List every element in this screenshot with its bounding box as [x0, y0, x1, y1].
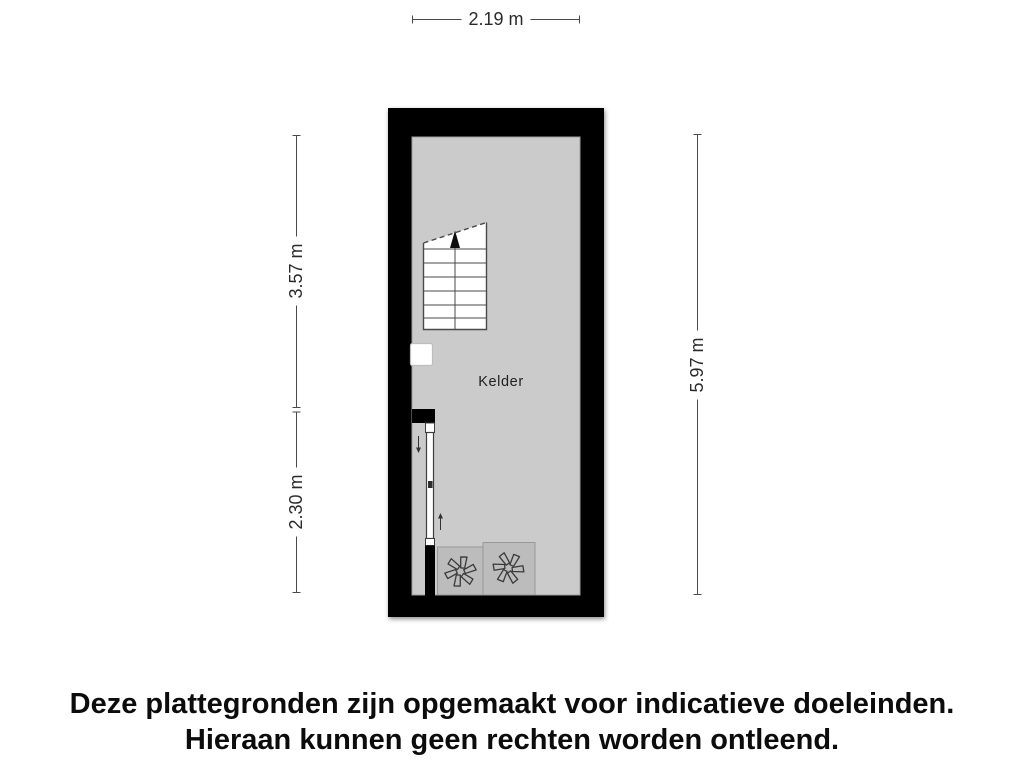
disclaimer: Deze plattegronden zijn opgemaakt voor i… — [0, 686, 1024, 758]
disclaimer-line-2: Hieraan kunnen geen rechten worden ontle… — [0, 722, 1024, 758]
dimension-label-left-upper: 3.57 m — [285, 236, 307, 305]
wall-stub-upper — [412, 409, 435, 423]
room-label: Kelder — [478, 374, 524, 390]
ladder-bottom-cap — [426, 539, 435, 546]
floorplan-page: 2.19 m 3.57 m 2.30 m 5.97 m Kelder Deze … — [0, 0, 1024, 768]
dimension-label-left-lower: 2.30 m — [285, 467, 307, 536]
ladder-rung — [428, 481, 433, 488]
appliance-left — [438, 547, 484, 595]
disclaimer-line-1: Deze plattegronden zijn opgemaakt voor i… — [0, 686, 1024, 722]
dimension-label-top: 2.19 m — [461, 8, 530, 30]
ladder-top-cap — [426, 423, 435, 433]
dimension-label-right: 5.97 m — [686, 330, 708, 399]
appliance-right — [483, 543, 535, 596]
wall-niche — [411, 344, 433, 366]
appliances — [438, 543, 536, 596]
wall-stub-lower — [425, 546, 435, 596]
cellar-floor — [412, 137, 580, 595]
